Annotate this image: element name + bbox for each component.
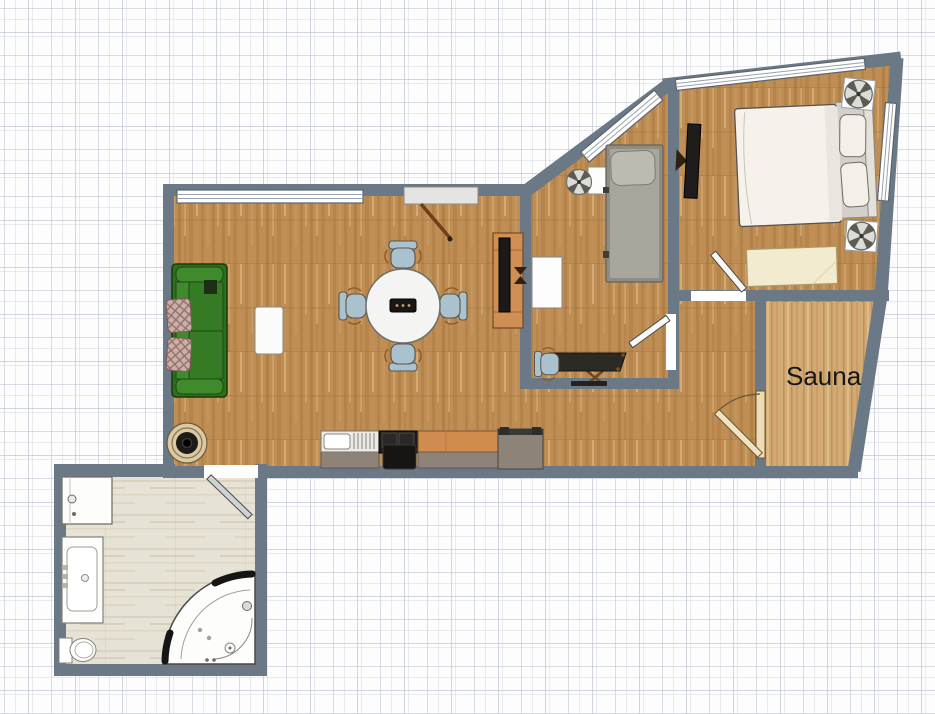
coffee-table[interactable] bbox=[255, 307, 283, 354]
floorplan-canvas: Sauna bbox=[0, 0, 935, 714]
kitchen-counter[interactable] bbox=[418, 431, 498, 468]
sofa-remote bbox=[204, 280, 217, 294]
throw-pillow[interactable] bbox=[166, 298, 192, 333]
tv-cabinet[interactable] bbox=[493, 233, 527, 328]
toilet[interactable] bbox=[59, 638, 96, 663]
double-bed[interactable] bbox=[734, 101, 877, 227]
shower-unit[interactable] bbox=[62, 477, 112, 524]
throw-pillow[interactable] bbox=[166, 337, 192, 372]
kitchen-sink-unit[interactable] bbox=[321, 431, 379, 468]
bed-pillow bbox=[610, 150, 655, 186]
fridge[interactable] bbox=[498, 427, 543, 469]
pillow bbox=[840, 162, 869, 208]
floor-speaker[interactable] bbox=[167, 423, 207, 463]
sofa[interactable] bbox=[166, 264, 227, 397]
tub-faucet bbox=[243, 602, 252, 611]
fan-unit[interactable] bbox=[842, 78, 876, 111]
wall-bathroom-top[interactable] bbox=[54, 464, 175, 477]
floorplan-drawing: Sauna bbox=[0, 0, 935, 714]
fridge-handle bbox=[500, 427, 509, 435]
fridge-handle bbox=[532, 427, 541, 435]
wall-table[interactable] bbox=[532, 257, 562, 308]
bench[interactable] bbox=[746, 246, 837, 286]
wall-bathroom-right[interactable] bbox=[255, 464, 267, 676]
fan-unit[interactable] bbox=[567, 170, 592, 195]
window-living-top[interactable] bbox=[177, 190, 363, 203]
sink-basin bbox=[324, 434, 350, 449]
sauna-room-label: Sauna bbox=[786, 361, 862, 391]
single-bed[interactable] bbox=[603, 145, 663, 282]
vanity-sink[interactable] bbox=[62, 537, 103, 623]
fan-unit[interactable] bbox=[845, 220, 878, 252]
tv-screen bbox=[499, 238, 510, 312]
oven bbox=[383, 445, 416, 469]
stove-oven[interactable] bbox=[379, 431, 418, 469]
pillow bbox=[840, 115, 866, 157]
wall-bathroom-bottom[interactable] bbox=[54, 664, 267, 676]
